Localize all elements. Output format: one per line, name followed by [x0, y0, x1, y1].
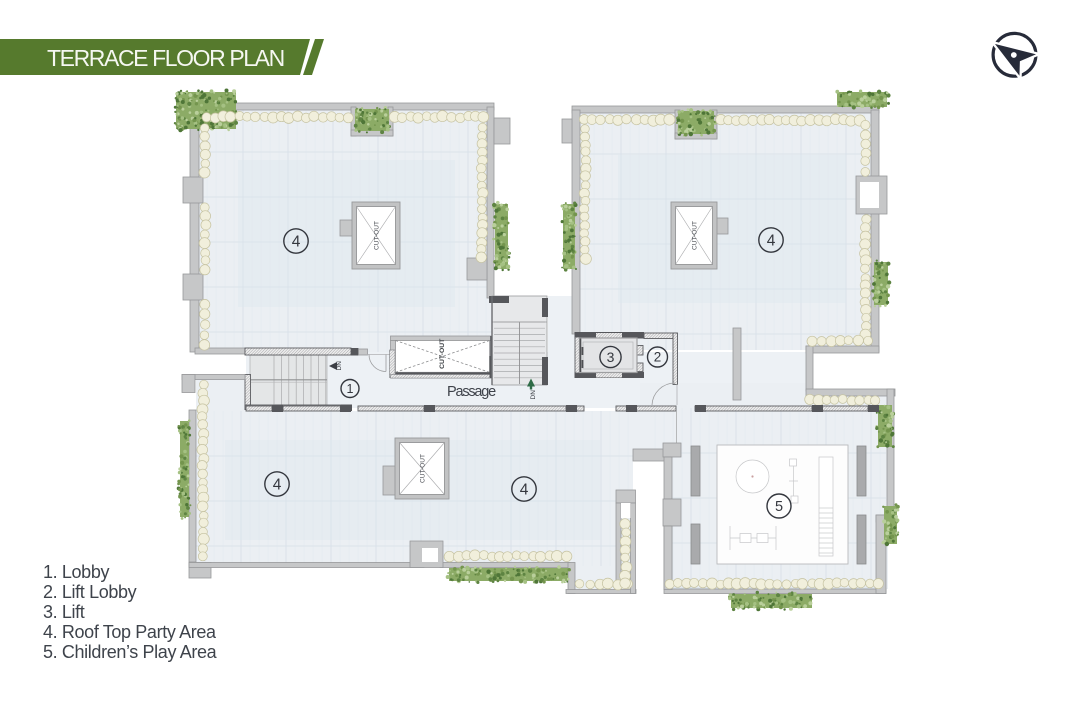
svg-text:TERRACE FLOOR PLAN: TERRACE FLOOR PLAN — [47, 45, 284, 71]
svg-text:CUT-OUT: CUT-OUT — [692, 221, 699, 250]
svg-text:2. Lift Lobby: 2. Lift Lobby — [43, 582, 137, 602]
svg-text:1: 1 — [347, 382, 354, 396]
svg-text:4: 4 — [273, 476, 282, 493]
svg-text:1. Lobby: 1. Lobby — [43, 562, 109, 582]
svg-text:4: 4 — [767, 232, 776, 249]
svg-text:4: 4 — [520, 481, 529, 498]
svg-text:3: 3 — [607, 349, 615, 365]
svg-text:5: 5 — [775, 499, 783, 515]
svg-text:3. Lift: 3. Lift — [43, 602, 85, 622]
svg-text:5. Children’s Play Area: 5. Children’s Play Area — [43, 642, 218, 662]
svg-text:Passage: Passage — [447, 384, 496, 400]
svg-text:CUT-OUT: CUT-OUT — [439, 338, 446, 369]
svg-text:2: 2 — [654, 350, 662, 365]
svg-text:CUT-OUT: CUT-OUT — [374, 221, 381, 250]
svg-text:DN: DN — [530, 390, 537, 400]
svg-text:DN: DN — [336, 361, 343, 371]
svg-text:4. Roof Top Party Area: 4. Roof Top Party Area — [43, 622, 217, 642]
svg-text:4: 4 — [292, 233, 301, 250]
svg-text:CUT-OUT: CUT-OUT — [420, 454, 427, 483]
